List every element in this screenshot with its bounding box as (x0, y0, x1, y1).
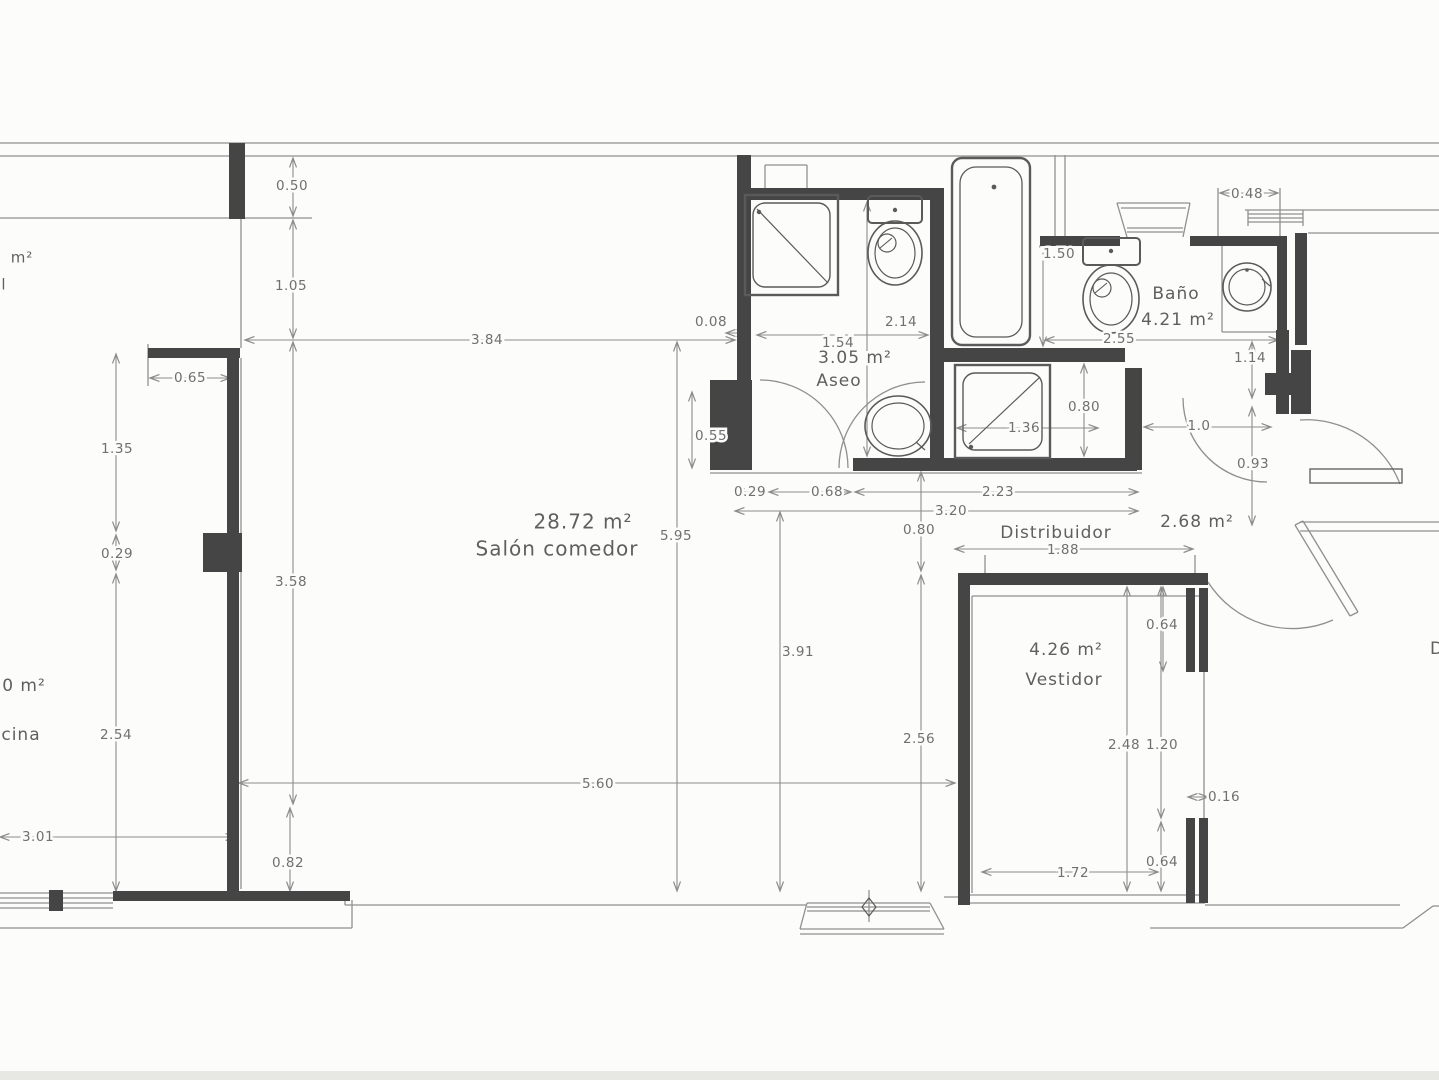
wall-segment (113, 891, 350, 901)
dimension-label: 0.48 (1231, 186, 1263, 202)
wall-segment (148, 348, 240, 358)
partial-label: m² (11, 249, 34, 267)
wall-segment (1199, 818, 1208, 903)
dimension-label: 2.54 (100, 727, 132, 743)
dimension-label: 2.48 (1108, 737, 1140, 753)
dimension-label: 0.64 (1146, 854, 1178, 870)
dimension-label: 2.14 (885, 314, 917, 330)
dimension-label: 5.60 (582, 776, 614, 792)
dimension-label: 0.08 (695, 314, 727, 330)
toilet-tank-button-2 (1109, 249, 1113, 253)
scan-edge-band (0, 1071, 1439, 1080)
dimension-label: 1.36 (1008, 420, 1040, 436)
dimension-label: 1.88 (1047, 542, 1079, 558)
wall-segment (710, 380, 752, 470)
dimension-label: 1.72 (1057, 865, 1089, 881)
floorplan-sheet: 0.501.053.840.651.350.293.582.543.010.82… (0, 0, 1439, 1080)
partial-label: cina (1, 725, 40, 745)
wall-segment (1295, 233, 1307, 345)
toilet-tank-button (893, 208, 897, 212)
dimension-label: 0.16 (1208, 789, 1240, 805)
dimension-label: 3.01 (22, 829, 54, 845)
dimension-label: 2.56 (903, 731, 935, 747)
dimension-label: 0.55 (695, 428, 727, 444)
dimension-label: 2.23 (982, 484, 1014, 500)
partial-label: D (1430, 639, 1439, 659)
wall-segment (229, 143, 245, 219)
room-label: Salón comedor (476, 537, 639, 561)
wall-segment (1190, 236, 1287, 246)
room-label: Aseo (816, 371, 861, 391)
wall-segment (1125, 368, 1142, 470)
wall-segment (944, 348, 1125, 362)
dimension-label: 0.80 (1068, 399, 1100, 415)
dimension-label: 3.84 (471, 332, 503, 348)
dimension-label: 1.0 (1188, 418, 1211, 434)
dimension-label: 0.29 (101, 546, 133, 562)
wall-segment (853, 458, 1137, 471)
area-label: 3.05 m² (818, 348, 892, 368)
wall-segment (1186, 588, 1195, 672)
area-label: 4.21 m² (1141, 310, 1215, 330)
shower-drain-2 (969, 445, 973, 449)
dimension-label: 3.91 (782, 644, 814, 660)
plan-root: 0.501.053.840.651.350.293.582.543.010.82… (0, 0, 1439, 1080)
wall-segment (227, 564, 239, 892)
dimension-label: 0.80 (903, 522, 935, 538)
partial-label: 0 m² (2, 676, 46, 696)
dimension-label: 3.58 (275, 574, 307, 590)
dimension-label: 3.20 (935, 503, 967, 519)
dimension-label: 0.64 (1146, 617, 1178, 633)
dimension-label: 0.68 (811, 484, 843, 500)
dimension-label: 1.14 (1234, 350, 1266, 366)
room-label: Distribuidor (1000, 523, 1112, 543)
wall-segment (930, 188, 944, 470)
dimension-label: 0.93 (1237, 456, 1269, 472)
dimension-label: 0.29 (734, 484, 766, 500)
wall-segment (49, 890, 63, 911)
wall-segment (1186, 818, 1195, 903)
area-label: 28.72 m² (533, 510, 632, 534)
room-label: Vestidor (1025, 670, 1102, 690)
dimension-label: 0.50 (276, 178, 308, 194)
floorplan-svg: 0.501.053.840.651.350.293.582.543.010.82… (0, 0, 1439, 1080)
wall-segment (958, 573, 970, 905)
dimension-label: 2.55 (1103, 331, 1135, 347)
dimension-label: 1.35 (101, 441, 133, 457)
bathtub-drain (992, 185, 997, 190)
wall-segment (1291, 350, 1311, 414)
wall-segment (1199, 588, 1208, 672)
wall-segment (1276, 330, 1289, 414)
partial-label: l (1, 276, 6, 294)
dimension-label: 0.65 (174, 370, 206, 386)
room-label: Baño (1152, 284, 1199, 304)
area-label: 4.26 m² (1029, 640, 1103, 660)
dimension-label: 1.50 (1043, 246, 1075, 262)
wall-segment (958, 573, 1208, 585)
wall-segment (227, 348, 239, 564)
area-label: 2.68 m² (1160, 512, 1234, 532)
dimension-label: 5.95 (660, 528, 692, 544)
shower-drain (757, 210, 761, 214)
dimension-label: 1.20 (1146, 737, 1178, 753)
dimension-label: 0.82 (272, 855, 304, 871)
washbasin-tap (1245, 268, 1249, 272)
dimension-label: 1.05 (275, 278, 307, 294)
